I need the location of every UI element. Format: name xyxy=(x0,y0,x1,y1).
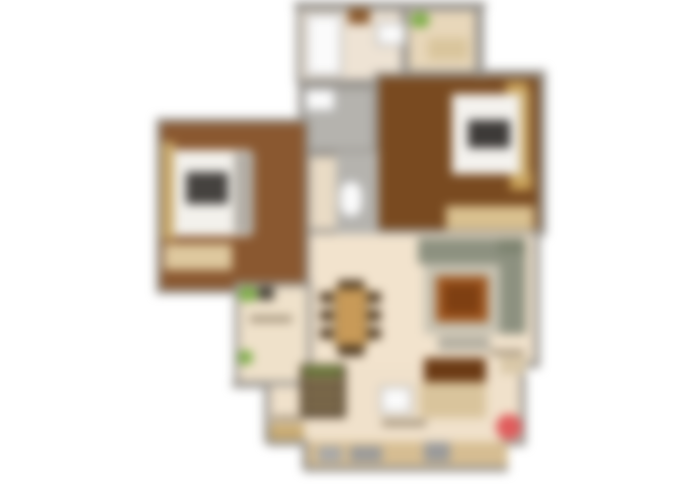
bathroom-sink xyxy=(304,88,336,112)
study-label-smudge xyxy=(250,316,292,322)
shower-stall xyxy=(306,14,342,76)
wall-step-left xyxy=(268,440,308,446)
counter-stove xyxy=(350,446,382,462)
dining-chair-right-3 xyxy=(368,328,381,339)
bath-shelf xyxy=(348,8,370,24)
sofa-right-section xyxy=(498,254,526,334)
dining-chair-left-1 xyxy=(320,292,333,303)
dining-chair-right-1 xyxy=(368,292,381,303)
washbasin-top xyxy=(376,22,406,46)
balcony-plant xyxy=(410,12,430,28)
hall-label-smudge xyxy=(272,416,304,421)
study-plant-bottom xyxy=(238,350,253,365)
kitchen-island xyxy=(380,386,412,414)
dining-chair-left-2 xyxy=(320,310,333,321)
kitchen-shelf-line-1 xyxy=(304,380,342,384)
wall-protrusion-bottom xyxy=(304,466,508,472)
wall-study-bottom xyxy=(232,382,270,388)
study-dark-item xyxy=(258,287,274,300)
side-table-label-smudge xyxy=(490,350,524,355)
kitchen-shelf-line-2 xyxy=(304,392,342,396)
study-plant-top xyxy=(238,286,258,302)
kitchen-shelf-top-items xyxy=(304,366,342,376)
ottoman xyxy=(438,336,490,351)
bedroom-left-pillows xyxy=(186,172,228,204)
wall-top xyxy=(294,2,486,8)
balcony-mat xyxy=(428,38,468,60)
bedroom-right-pillows xyxy=(468,120,510,148)
red-stool xyxy=(496,414,522,440)
bedroom-left-rug xyxy=(164,244,232,270)
counter-sink xyxy=(318,446,342,462)
sofa-top-section xyxy=(418,238,506,264)
floor-plan-screenshot xyxy=(0,0,700,488)
wall-bedroom-right-top xyxy=(404,70,546,76)
kitchen-shelf-line-3 xyxy=(304,404,342,408)
bedroom-left-blanket xyxy=(234,152,254,234)
shoe-rack xyxy=(270,424,304,440)
bedroom-right-wardrobe xyxy=(446,206,534,230)
wall-bedroom-right-side xyxy=(540,72,546,236)
tv-unit xyxy=(424,358,486,382)
kitchen-counter-right xyxy=(420,382,486,418)
wall-balcony-right xyxy=(478,4,484,78)
wall-living-right xyxy=(534,232,540,366)
dining-chair-bottom xyxy=(338,346,364,356)
floor-plan xyxy=(0,0,700,488)
toilet-wc xyxy=(338,180,364,218)
side-table-right xyxy=(500,356,526,374)
dining-chair-left-3 xyxy=(320,328,333,339)
counter-appliance xyxy=(424,442,450,462)
kitchen-label-smudge xyxy=(382,420,426,426)
dining-chair-right-2 xyxy=(368,310,381,321)
coffee-table-inner xyxy=(444,284,480,314)
dining-table xyxy=(334,288,368,346)
